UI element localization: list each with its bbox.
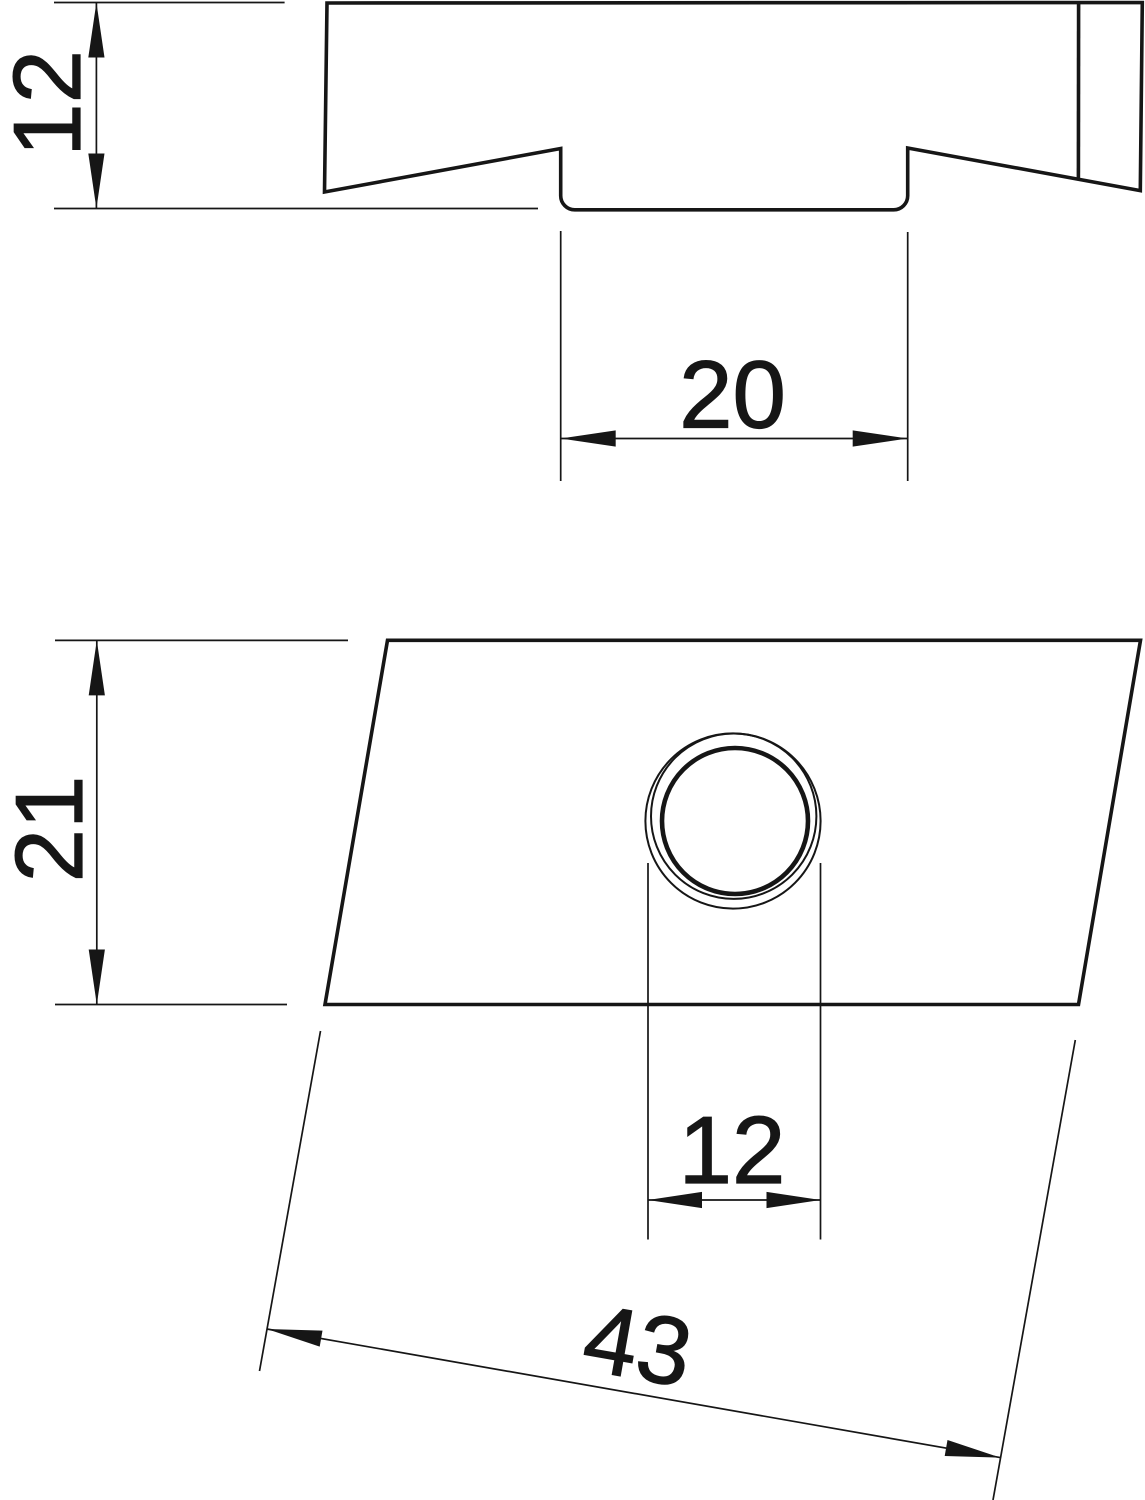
svg-text:20: 20 — [679, 342, 786, 449]
svg-text:21: 21 — [0, 776, 103, 883]
svg-text:43: 43 — [576, 1284, 700, 1408]
svg-text:12: 12 — [679, 1097, 786, 1204]
svg-text:12: 12 — [0, 50, 101, 157]
